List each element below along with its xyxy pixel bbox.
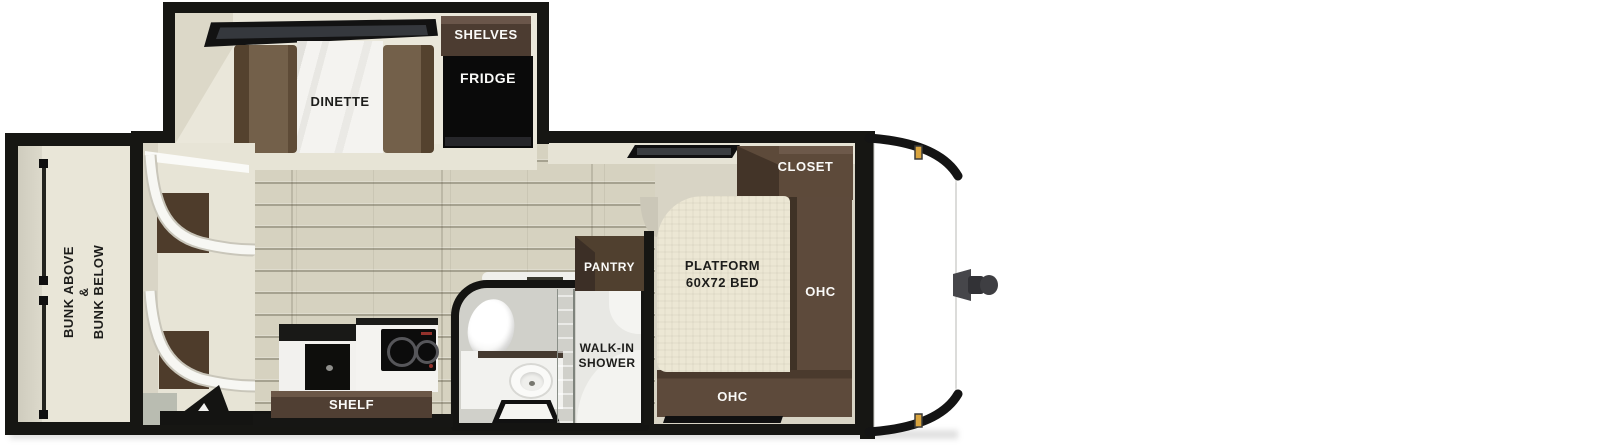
shower-label-line2: SHOWER — [568, 356, 646, 371]
cooktop-dot-icon — [429, 364, 433, 368]
sink-drain-icon — [529, 381, 535, 386]
bedroom-window — [627, 145, 740, 158]
door-hinge-icon — [39, 276, 48, 285]
fridge-front-edge — [445, 137, 531, 146]
bunk-room-door-line-bottom — [42, 300, 46, 418]
bed-label: PLATFORM 60X72 BED — [656, 257, 789, 291]
bunk-ends-graphic — [143, 143, 255, 424]
fridge-label: FRIDGE — [443, 70, 533, 87]
door-hinge-icon — [39, 296, 48, 305]
marker-light-icon — [915, 414, 922, 427]
door-hinge-icon — [39, 159, 48, 168]
dinette-window-glass — [216, 25, 428, 39]
dinette-label: DINETTE — [299, 94, 381, 110]
vanity-backsplash — [478, 351, 563, 358]
burner-icon — [387, 337, 417, 367]
kitchen-counter-right — [356, 318, 438, 392]
shelf-label: SHELF — [271, 397, 432, 413]
bunk-room-label-line1: BUNK ABOVE — [61, 246, 77, 338]
kitchen-counter-left-top — [279, 324, 356, 341]
bed-label-line1: PLATFORM — [656, 257, 789, 274]
door-hinge-icon — [39, 410, 48, 419]
bedroom-window-glass — [637, 148, 731, 155]
front-cap-graphic — [855, 98, 1005, 445]
shower-label-line1: WALK-IN — [568, 341, 646, 356]
closet-top-edge — [779, 146, 853, 154]
pantry-label: PANTRY — [575, 260, 644, 274]
cabinet-knob-icon — [326, 365, 333, 371]
bunk-room-label-line3: BUNK BELOW — [91, 245, 107, 340]
dinette-bench-left — [234, 45, 297, 153]
bunk-room-label: BUNK ABOVE & BUNK BELOW — [54, 232, 114, 352]
bedroom-wall — [644, 231, 654, 425]
shelves-label: SHELVES — [441, 27, 531, 43]
cooktop-controls-icon — [421, 332, 432, 335]
bedroom-foot-window — [663, 416, 783, 423]
bath-mat — [492, 400, 560, 423]
bunk-room-label-line2: & — [77, 287, 91, 296]
bed-label-line2: 60X72 BED — [656, 274, 789, 291]
marker-light-icon — [915, 146, 922, 159]
sink-icon — [509, 363, 553, 399]
shower-label: WALK-IN SHOWER — [568, 341, 646, 371]
closet-label: CLOSET — [758, 159, 853, 175]
dinette-bench-right — [383, 45, 434, 153]
kitchen-counter-right-top — [356, 318, 438, 325]
cooktop — [381, 329, 436, 371]
ohc-foot-label: OHC — [660, 389, 805, 405]
burner-icon — [415, 340, 439, 364]
kitchen-counter-left — [279, 324, 356, 392]
floorplan-canvas: BUNK ABOVE & BUNK BELOW DINETTE SHELVES … — [0, 0, 1600, 445]
bath-mat-inner — [499, 404, 553, 419]
bunk-room-door-line-top — [42, 163, 46, 283]
ohc-side-label: OHC — [789, 284, 852, 300]
